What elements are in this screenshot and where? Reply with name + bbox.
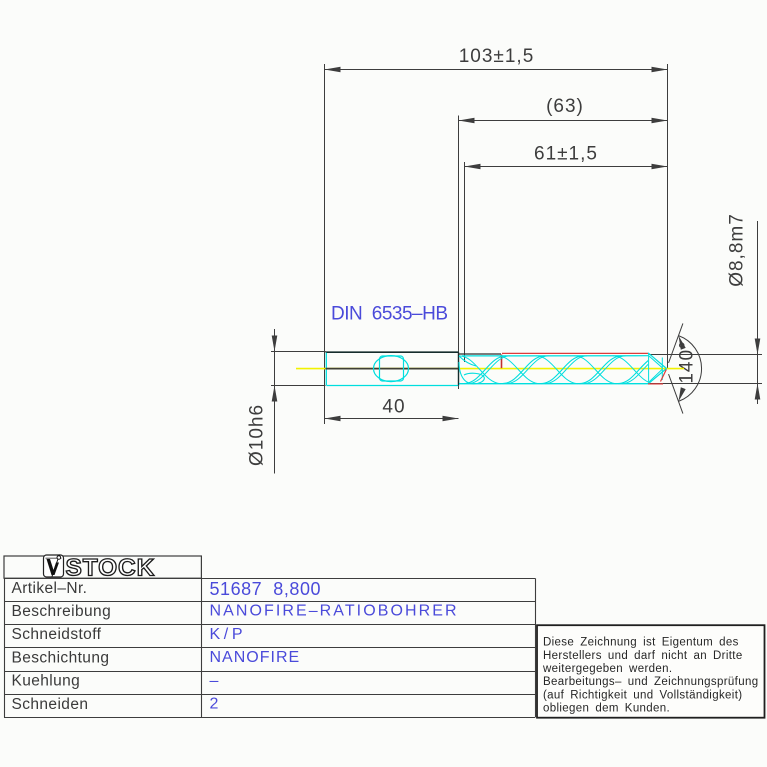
svg-text:40: 40 <box>382 397 405 418</box>
svg-text:61±1,5: 61±1,5 <box>534 144 598 165</box>
svg-text:obliegen dem Kunden.: obliegen dem Kunden. <box>543 703 670 715</box>
svg-text:(63): (63) <box>546 96 584 117</box>
svg-text:Kuehlung: Kuehlung <box>12 673 81 690</box>
svg-text:Bearbeitungs– und Zeichnungspr: Bearbeitungs– und Zeichnungsprüfung <box>543 676 758 688</box>
svg-text:103±1,5: 103±1,5 <box>459 46 535 67</box>
svg-text:2: 2 <box>210 696 220 713</box>
svg-text:(auf Richtigkeit und Vollständ: (auf Richtigkeit und Vollständigkeit) <box>543 689 742 701</box>
svg-text:DIN 6535–HB: DIN 6535–HB <box>331 304 449 325</box>
svg-text:Herstellers und darf nicht an: Herstellers und darf nicht an Dritte <box>543 650 743 662</box>
svg-text:Diese Zeichnung ist Eigentum d: Diese Zeichnung ist Eigentum des <box>543 637 739 649</box>
svg-text:NANOFIRE–RATIOBOHRER: NANOFIRE–RATIOBOHRER <box>210 603 458 620</box>
svg-text:Artikel–Nr.: Artikel–Nr. <box>12 580 88 597</box>
svg-text:Schneidstoff: Schneidstoff <box>12 626 102 643</box>
svg-text:Schneiden: Schneiden <box>12 696 89 713</box>
svg-text:Beschichtung: Beschichtung <box>12 649 110 666</box>
svg-text:51687 8,800: 51687 8,800 <box>210 579 322 599</box>
svg-text:Ø8,8m7: Ø8,8m7 <box>727 213 748 287</box>
svg-text:Beschreibung: Beschreibung <box>12 603 112 620</box>
svg-text:STOCK: STOCK <box>66 555 157 582</box>
svg-text:K/P: K/P <box>210 626 244 643</box>
svg-text:Ø10h6: Ø10h6 <box>247 404 268 466</box>
svg-text:140°: 140° <box>677 340 698 383</box>
svg-text:NANOFIRE: NANOFIRE <box>210 649 301 666</box>
svg-text:weitergegeben werden.: weitergegeben werden. <box>542 663 672 675</box>
svg-text:–: – <box>210 672 220 689</box>
